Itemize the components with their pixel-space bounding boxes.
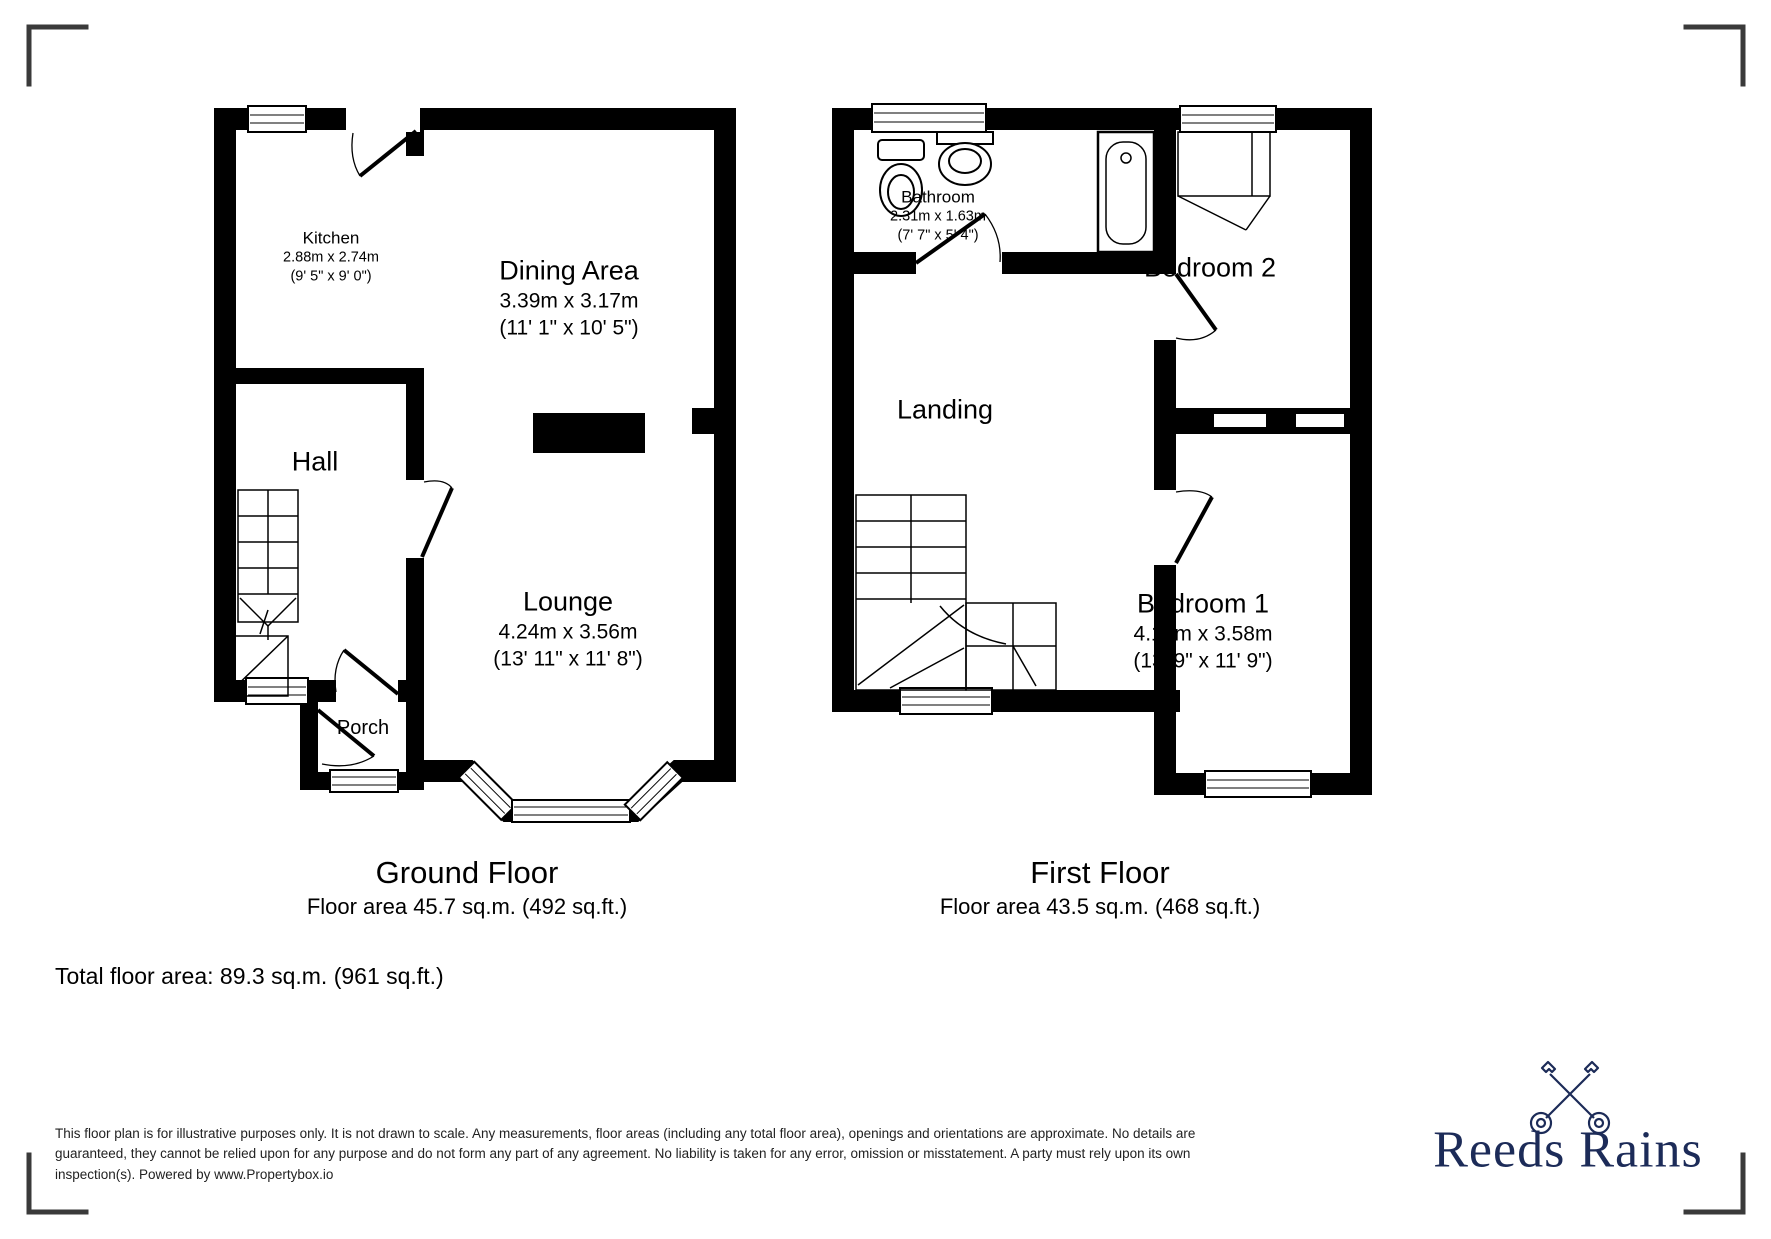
cupboard [1178,132,1270,230]
room-label-hall: Hall [292,446,339,479]
floor-area: Floor area 43.5 sq.m. (468 sq.ft.) [940,892,1260,922]
room-name: Porch [337,716,389,740]
bedroom1-door-swing [1176,491,1212,563]
floorplan-canvas [0,0,1771,1239]
bathroom-window [872,104,986,132]
room-name: Lounge [493,586,642,619]
room-label-bathroom: Bathroom 2.31m x 1.63m (7' 7" x 5' 4") [890,187,986,246]
room-label-lounge: Lounge 4.24m x 3.56m (13' 11" x 11' 8") [493,586,642,673]
first-floor-caption: First Floor Floor area 43.5 sq.m. (468 s… [940,854,1260,922]
room-dims-metric: 4.19m x 3.58m [1133,621,1272,648]
room-name: Kitchen [283,228,379,249]
hall-lounge-door-swing [422,481,452,557]
floor-area: Floor area 45.7 sq.m. (492 sq.ft.) [307,892,627,922]
kitchen-window [248,106,306,132]
floor-title: First Floor [940,854,1260,892]
sink-icon [937,132,993,185]
corner-mark-top-left [29,27,86,84]
landing-window [900,688,992,714]
bedroom1-window [1205,771,1311,797]
room-name: Bedroom 2 [1144,252,1276,285]
bathtub-icon [1098,132,1154,252]
total-floor-area: Total floor area: 89.3 sq.m. (961 sq.ft.… [55,963,444,990]
chimney-breast [533,413,645,453]
room-dims-imperial: (13' 9" x 11' 9") [1133,648,1272,675]
room-name: Bathroom [890,187,986,208]
reeds-rains-logo: Reeds Rains [1433,1121,1703,1180]
ground-floor-caption: Ground Floor Floor area 45.7 sq.m. (492 … [307,854,627,922]
room-label-dining-area: Dining Area 3.39m x 3.17m (11' 1" x 10' … [499,255,639,342]
room-dims-imperial: (13' 11" x 11' 8") [493,646,642,673]
disclaimer-text: This floor plan is for illustrative purp… [55,1124,1220,1185]
room-name: Dining Area [499,255,639,288]
room-dims-imperial: (7' 7" x 5' 4") [890,227,986,246]
room-name: Hall [292,446,339,479]
room-dims-metric: 3.39m x 3.17m [499,288,639,315]
room-name: Bedroom 1 [1133,588,1272,621]
staircase-first [856,495,1056,690]
hall-window [246,678,308,704]
corner-mark-top-right [1686,27,1743,84]
bedroom2-window [1180,106,1276,132]
floor-title: Ground Floor [307,854,627,892]
room-label-landing: Landing [897,394,993,427]
hall-porch-door-swing [335,650,398,694]
room-label-kitchen: Kitchen 2.88m x 2.74m (9' 5" x 9' 0") [283,228,379,287]
floorplan-page: Kitchen 2.88m x 2.74m (9' 5" x 9' 0") Di… [0,0,1771,1239]
room-dims-metric: 2.88m x 2.74m [283,249,379,268]
room-name: Landing [897,394,993,427]
bay-window-left [459,762,517,820]
room-dims-imperial: (9' 5" x 9' 0") [283,268,379,287]
room-dims-imperial: (11' 1" x 10' 5") [499,315,639,342]
room-label-bedroom1: Bedroom 1 4.19m x 3.58m (13' 9" x 11' 9"… [1133,588,1272,675]
porch-window [330,770,398,792]
room-label-bedroom2: Bedroom 2 [1144,252,1276,285]
room-dims-metric: 2.31m x 1.63m [890,208,986,227]
staircase-ground [238,490,298,640]
room-label-porch: Porch [337,716,389,740]
bay-window-right [625,762,683,820]
room-dims-metric: 4.24m x 3.56m [493,619,642,646]
bay-window-center [512,800,630,822]
